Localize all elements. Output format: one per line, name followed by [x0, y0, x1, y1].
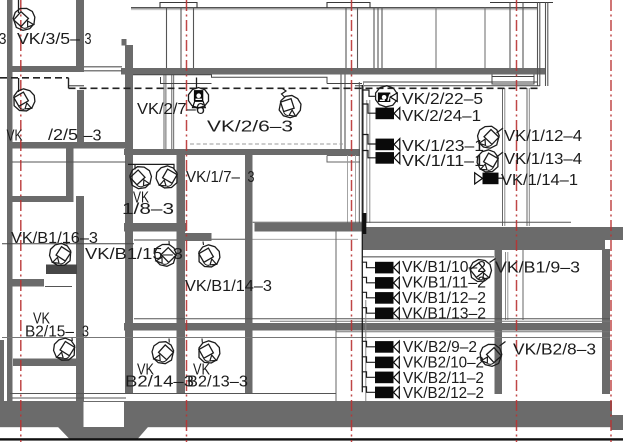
- svg-text:/2/5: /2/5: [48, 127, 78, 144]
- svg-text:VK/2/7–6: VK/2/7–6: [137, 101, 205, 118]
- svg-text:3: 3: [82, 324, 89, 341]
- svg-text:–3: –3: [84, 128, 102, 145]
- svg-text:VK/2/6–3: VK/2/6–3: [207, 119, 293, 136]
- svg-text:VK/B1/12–2: VK/B1/12–2: [402, 290, 486, 307]
- svg-text:VK/B2/9–2: VK/B2/9–2: [403, 339, 477, 356]
- svg-text:B2/14–3: B2/14–3: [125, 374, 194, 391]
- svg-text:VK/1/12–4: VK/1/12–4: [504, 128, 582, 145]
- svg-text:VK/3/5–: VK/3/5–: [17, 31, 80, 48]
- svg-text:VK/B1/11–2: VK/B1/11–2: [402, 275, 486, 292]
- svg-text:VK/2/22–5: VK/2/22–5: [402, 91, 483, 108]
- svg-text:VK/1/11–1: VK/1/11–1: [402, 153, 484, 170]
- svg-text:VK/2/24–1: VK/2/24–1: [402, 108, 481, 125]
- svg-text:VK/B2/12–2: VK/B2/12–2: [403, 385, 484, 402]
- svg-text:VK/B1/16–3: VK/B1/16–3: [11, 230, 98, 247]
- svg-text:VK/B1/14–3: VK/B1/14–3: [185, 278, 272, 295]
- svg-text:1/8–3: 1/8–3: [122, 201, 174, 218]
- svg-text:VK/B1/9–3: VK/B1/9–3: [495, 260, 580, 277]
- svg-text:VK/B1/13–2: VK/B1/13–2: [402, 306, 486, 323]
- svg-text:VK: VK: [7, 128, 23, 145]
- svg-text:VK/1/14–1: VK/1/14–1: [501, 172, 578, 189]
- svg-text:B2/15–: B2/15–: [25, 324, 74, 341]
- svg-text:VK/1/7–: VK/1/7–: [186, 169, 240, 186]
- svg-text:3: 3: [0, 31, 7, 48]
- svg-text:VK/B2/10–2: VK/B2/10–2: [403, 355, 484, 372]
- svg-text:3: 3: [85, 31, 92, 48]
- svg-text:VK/B2/8–3: VK/B2/8–3: [513, 342, 596, 359]
- svg-text:B2/13–3: B2/13–3: [187, 374, 248, 391]
- svg-text:3: 3: [248, 169, 255, 186]
- svg-text:VK/1/13–4: VK/1/13–4: [504, 151, 582, 168]
